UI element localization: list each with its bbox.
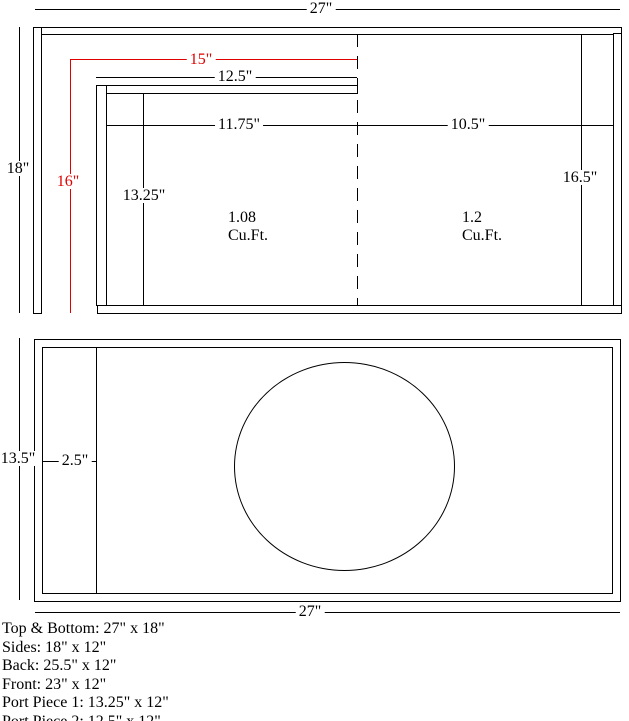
left-chamber-volume-annotation: 1.08 Cu.Ft. [228, 209, 268, 245]
top-view-side-height-label: 18" [4, 161, 33, 176]
top-view-port-piece-2 [96, 85, 358, 94]
cut-list-item-front: Front: 23" x 12" [2, 676, 169, 695]
front-view-woofer-cutout-circle [234, 362, 455, 571]
top-view-port-length-red-label: 15" [187, 52, 216, 67]
top-view-right-chamber-width-label: 10.5" [448, 117, 489, 132]
cut-list-item-sides: Sides: 18" x 12" [2, 639, 169, 658]
front-view-overall-width-dim-line [35, 612, 620, 613]
top-view-left-side-panel [33, 27, 42, 314]
top-view-left-chamber-width-label: 11.75" [215, 117, 263, 132]
top-view-port-piece-1-label: 13.25" [120, 188, 169, 203]
top-view-port-depth-red-label: 16" [54, 174, 83, 189]
front-view-height-label: 13.5" [0, 451, 38, 466]
cut-list-item-back: Back: 25.5" x 12" [2, 657, 169, 676]
top-view-chamber-divider-dashed-line [357, 34, 358, 305]
front-view-port-divider-line [96, 347, 97, 593]
right-chamber-volume-value: 1.2 [462, 209, 502, 227]
front-view-height-dim-line [19, 338, 20, 600]
cut-list-item-port-piece-1: Port Piece 1: 13.25" x 12" [2, 694, 169, 713]
top-view-right-chamber-depth-label: 16.5" [560, 170, 601, 185]
right-chamber-volume-unit: Cu.Ft. [462, 227, 502, 245]
top-view-back-panel [34, 27, 622, 35]
enclosure-plan-diagram: 27" 18" 16" 15" 12.5" 11.75" 10.5" 13.25… [0, 0, 629, 721]
top-view-port-piece-1 [96, 85, 107, 306]
left-chamber-volume-unit: Cu.Ft. [228, 227, 268, 245]
right-chamber-volume-annotation: 1.2 Cu.Ft. [462, 209, 502, 245]
top-view-overall-width-label: 27" [307, 1, 336, 16]
cut-list-item-top-bottom: Top & Bottom: 27" x 18" [2, 620, 169, 639]
front-view-overall-width-label: 27" [296, 604, 325, 619]
cut-list: Top & Bottom: 27" x 18" Sides: 18" x 12"… [2, 620, 169, 721]
cut-list-item-port-piece-2: Port Piece 2: 12.5" x 12" [2, 713, 169, 721]
top-view-front-panel [97, 305, 622, 314]
front-view-port-width-label: 2.5" [59, 453, 92, 468]
left-chamber-volume-value: 1.08 [228, 209, 268, 227]
top-view-port-piece-2-label: 12.5" [215, 69, 256, 84]
top-view-right-side-panel [613, 33, 622, 306]
